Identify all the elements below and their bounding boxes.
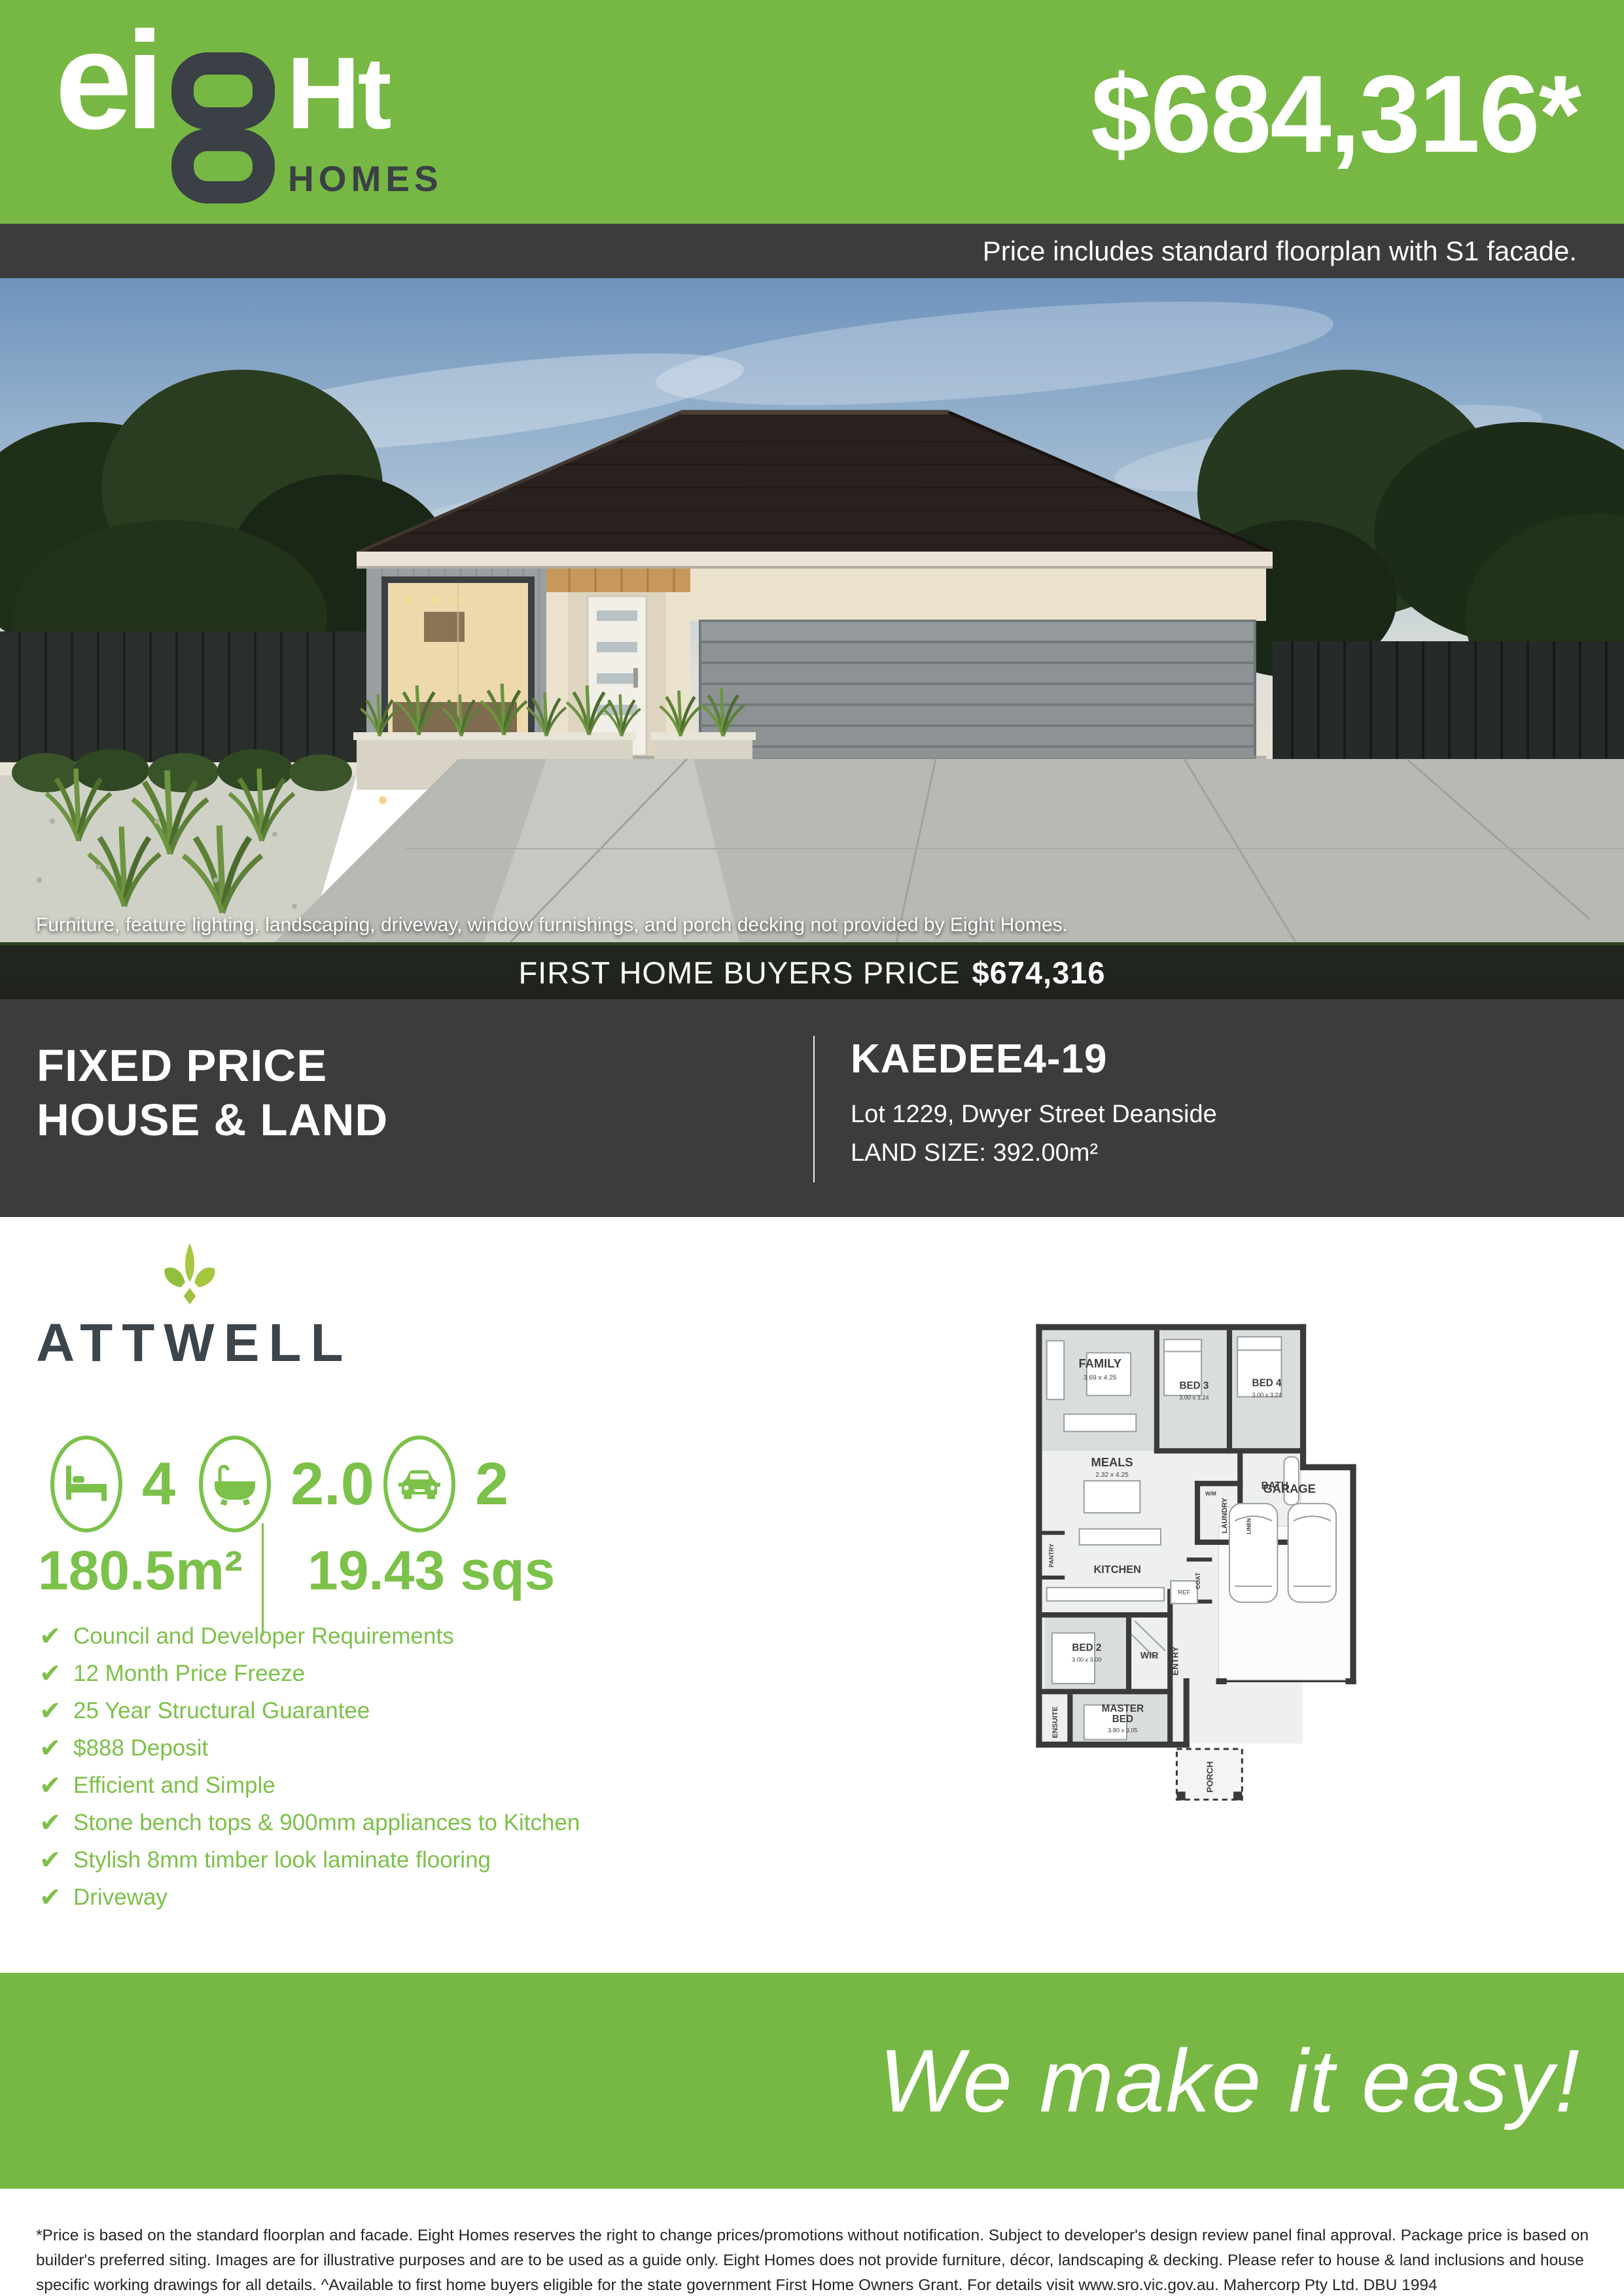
room-label: BED 2: [1072, 1642, 1101, 1653]
check-icon: ✔: [39, 1696, 73, 1726]
fhb-label: FIRST HOME BUYERS PRICE: [518, 955, 960, 991]
logo-eight-digit-icon: [183, 63, 264, 192]
bath-icon: [198, 1434, 272, 1534]
feature-item: ✔Stylish 8mm timber look laminate floori…: [39, 1841, 580, 1879]
room-dims: 3.69 x 4.25: [1084, 1374, 1117, 1381]
room-dims: 2.32 x 4.25: [1095, 1472, 1129, 1479]
features-list: ✔Council and Developer Requirements ✔12 …: [39, 1617, 580, 1916]
estate-name: ATTWELL: [36, 1313, 353, 1374]
room-dims: 3.80 x 3.05: [1108, 1727, 1137, 1733]
check-icon: ✔: [39, 1733, 73, 1763]
garage-door: [700, 621, 1255, 759]
stat-garage: 2: [382, 1434, 508, 1534]
feature-item: ✔$888 Deposit: [39, 1729, 580, 1767]
flyer-page: ei Ht HOMES $684,316* Price includes sta…: [0, 0, 1624, 2296]
room-dims: 3.00 x 3.00: [1072, 1656, 1101, 1663]
eight-homes-logo-icon: ei Ht HOMES: [0, 0, 458, 224]
area-squares: 19.43 sqs: [308, 1539, 555, 1602]
vertical-divider: [813, 1036, 815, 1182]
room-label: ENSUITE: [1051, 1706, 1059, 1738]
feature-item: ✔12 Month Price Freeze: [39, 1655, 580, 1692]
room-label: BED 3: [1179, 1381, 1209, 1392]
logo-text-ei: ei: [55, 3, 158, 158]
header-band: ei Ht HOMES $684,316*: [0, 0, 1624, 224]
land-size: LAND SIZE: 392.00m²: [851, 1139, 1217, 1167]
room-label: PORCH: [1205, 1761, 1214, 1793]
room-label: FAMILY: [1078, 1356, 1121, 1370]
price-note-text: Price includes standard floorplan with S…: [983, 236, 1624, 267]
right-fence: [1273, 641, 1624, 762]
house-photo: Furniture, feature lighting, landscaping…: [0, 278, 1624, 999]
check-icon: ✔: [39, 1771, 73, 1801]
left-garden: [0, 749, 357, 942]
fleur-de-lis-icon: [156, 1243, 224, 1316]
tagline: We make it easy!: [879, 2030, 1624, 2132]
section-title: FIXED PRICE HOUSE & LAND: [37, 1038, 388, 1147]
check-icon: ✔: [39, 1882, 73, 1913]
fhb-price: $674,316: [972, 955, 1105, 991]
bedrooms-count: 4: [142, 1450, 175, 1519]
floorplan: FAMILY 3.69 x 4.25 BED 3 3.00 x 3.24 BED…: [1023, 1314, 1369, 1808]
left-fence: [0, 631, 366, 762]
room-dims: 3.00 x 3.24: [1179, 1394, 1209, 1401]
room-label: WIR: [1140, 1650, 1159, 1661]
check-icon: ✔: [39, 1845, 73, 1875]
bed-icon: [49, 1434, 124, 1534]
hero-price: $684,316*: [1091, 51, 1580, 177]
room-label: BED 4: [1252, 1377, 1282, 1388]
feature-item: ✔Stone bench tops & 900mm appliances to …: [39, 1804, 580, 1841]
room-label: ENTRY: [1170, 1646, 1180, 1676]
stat-bathrooms: 2.0: [198, 1434, 374, 1534]
room-label: KITCHEN: [1094, 1564, 1141, 1576]
room-label: MASTER: [1102, 1703, 1144, 1714]
first-home-buyers-bar: FIRST HOME BUYERS PRICE $674,316: [0, 945, 1624, 999]
plan-name: KAEDEE4-19: [851, 1036, 1217, 1082]
title-line-2: HOUSE & LAND: [37, 1093, 388, 1147]
info-section: FIXED PRICE HOUSE & LAND KAEDEE4-19 Lot …: [0, 999, 1624, 1217]
feature-item: ✔Council and Developer Requirements: [39, 1617, 580, 1655]
stat-bedrooms: 4: [49, 1434, 175, 1534]
room-label: REF: [1178, 1589, 1190, 1595]
area-square-metres: 180.5m²: [38, 1539, 243, 1602]
logo-text-homes: HOMES: [288, 158, 443, 199]
room-label: PANTRY: [1048, 1544, 1055, 1568]
lot-address: Lot 1229, Dwyer Street Deanside: [851, 1101, 1217, 1129]
feature-item: ✔Efficient and Simple: [39, 1767, 580, 1804]
details-section: ATTWELL 4 2.0: [0, 1217, 1624, 1973]
logo-text-ht: Ht: [287, 37, 391, 150]
garage-count: 2: [475, 1450, 508, 1519]
room-dims: 3.00 x 3.24: [1252, 1392, 1281, 1398]
room-label: COAT: [1195, 1572, 1201, 1589]
photo-disclaimer-caption: Furniture, feature lighting, landscaping…: [36, 914, 1068, 936]
room-label: W/M: [1205, 1491, 1216, 1497]
feature-item: ✔Driveway: [39, 1879, 580, 1916]
room-label: BED: [1112, 1714, 1133, 1725]
house-photo-scene: [0, 278, 1624, 999]
feature-item: ✔25 Year Structural Guarantee: [39, 1692, 580, 1729]
check-icon: ✔: [39, 1621, 73, 1651]
room-label: MEALS: [1091, 1455, 1133, 1469]
disclaimer-text: *Price is based on the standard floorpla…: [36, 2223, 1592, 2296]
title-line-1: FIXED PRICE: [37, 1038, 388, 1093]
footer-band: We make it easy!: [0, 1973, 1624, 2189]
room-label: GARAGE: [1263, 1482, 1315, 1496]
check-icon: ✔: [39, 1808, 73, 1838]
room-label: LINEN: [1246, 1518, 1252, 1534]
price-note-bar: Price includes standard floorplan with S…: [0, 224, 1624, 278]
check-icon: ✔: [39, 1659, 73, 1689]
room-label: LAUNDRY: [1221, 1497, 1229, 1533]
entry-door: [588, 596, 646, 756]
car-icon: [382, 1434, 457, 1534]
lot-details: KAEDEE4-19 Lot 1229, Dwyer Street Deansi…: [851, 1036, 1217, 1167]
bathrooms-count: 2.0: [291, 1450, 374, 1519]
